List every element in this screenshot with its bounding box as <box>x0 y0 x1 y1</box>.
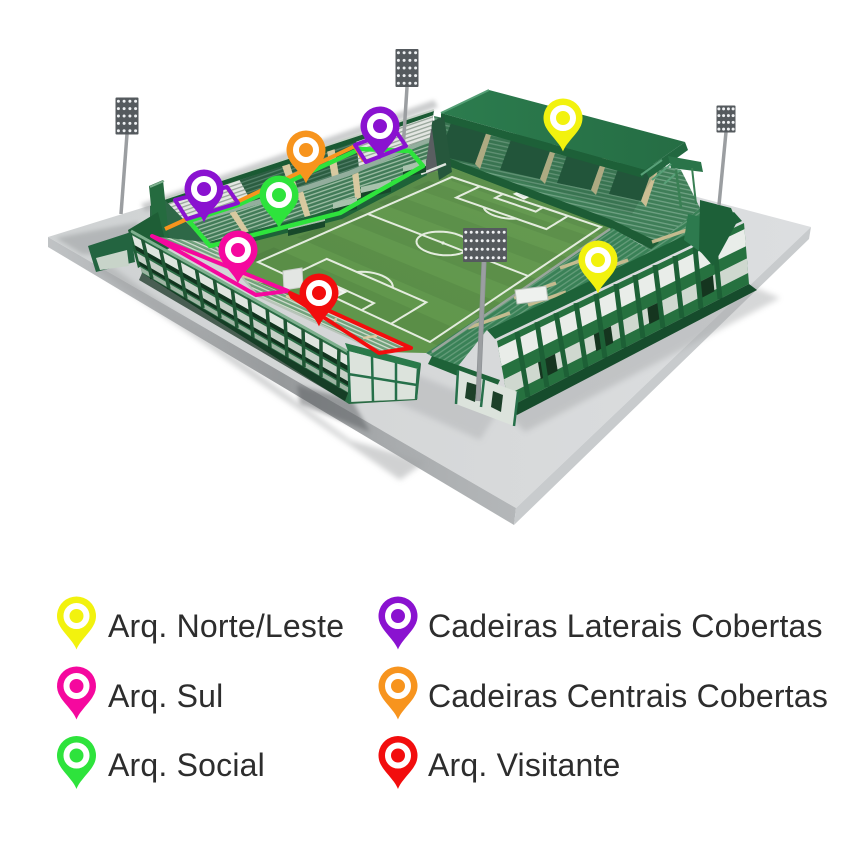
svg-text:Cadeiras Laterais Cobertas: Cadeiras Laterais Cobertas <box>428 608 823 644</box>
svg-text:Arq. Norte/Leste: Arq. Norte/Leste <box>108 608 344 644</box>
svg-text:Cadeiras Centrais Cobertas: Cadeiras Centrais Cobertas <box>428 678 828 714</box>
svg-text:Arq. Visitante: Arq. Visitante <box>428 747 621 783</box>
svg-text:Arq. Social: Arq. Social <box>108 747 265 783</box>
svg-text:Arq. Sul: Arq. Sul <box>108 678 223 714</box>
